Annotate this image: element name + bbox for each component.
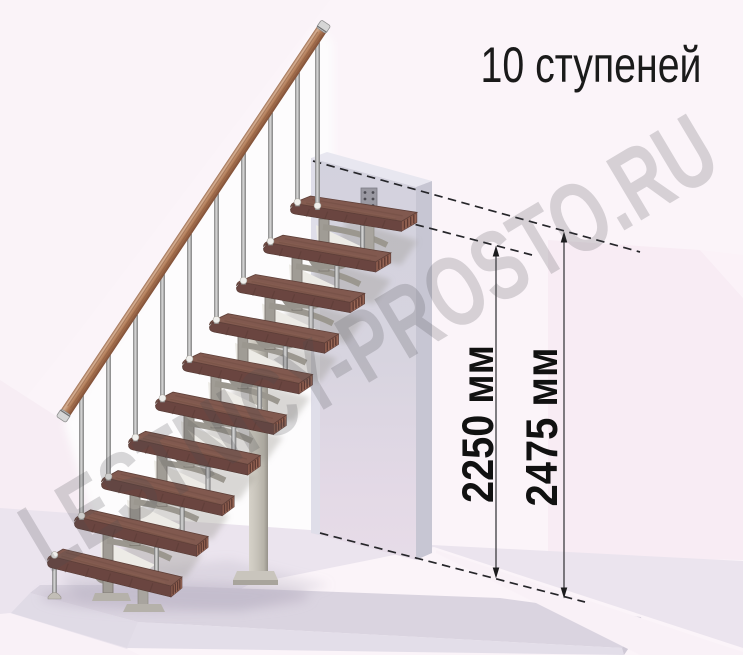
svg-text:2475 мм: 2475 мм bbox=[518, 348, 567, 507]
svg-text:10 ступеней: 10 ступеней bbox=[481, 37, 702, 93]
svg-text:2250 мм: 2250 мм bbox=[454, 345, 503, 503]
